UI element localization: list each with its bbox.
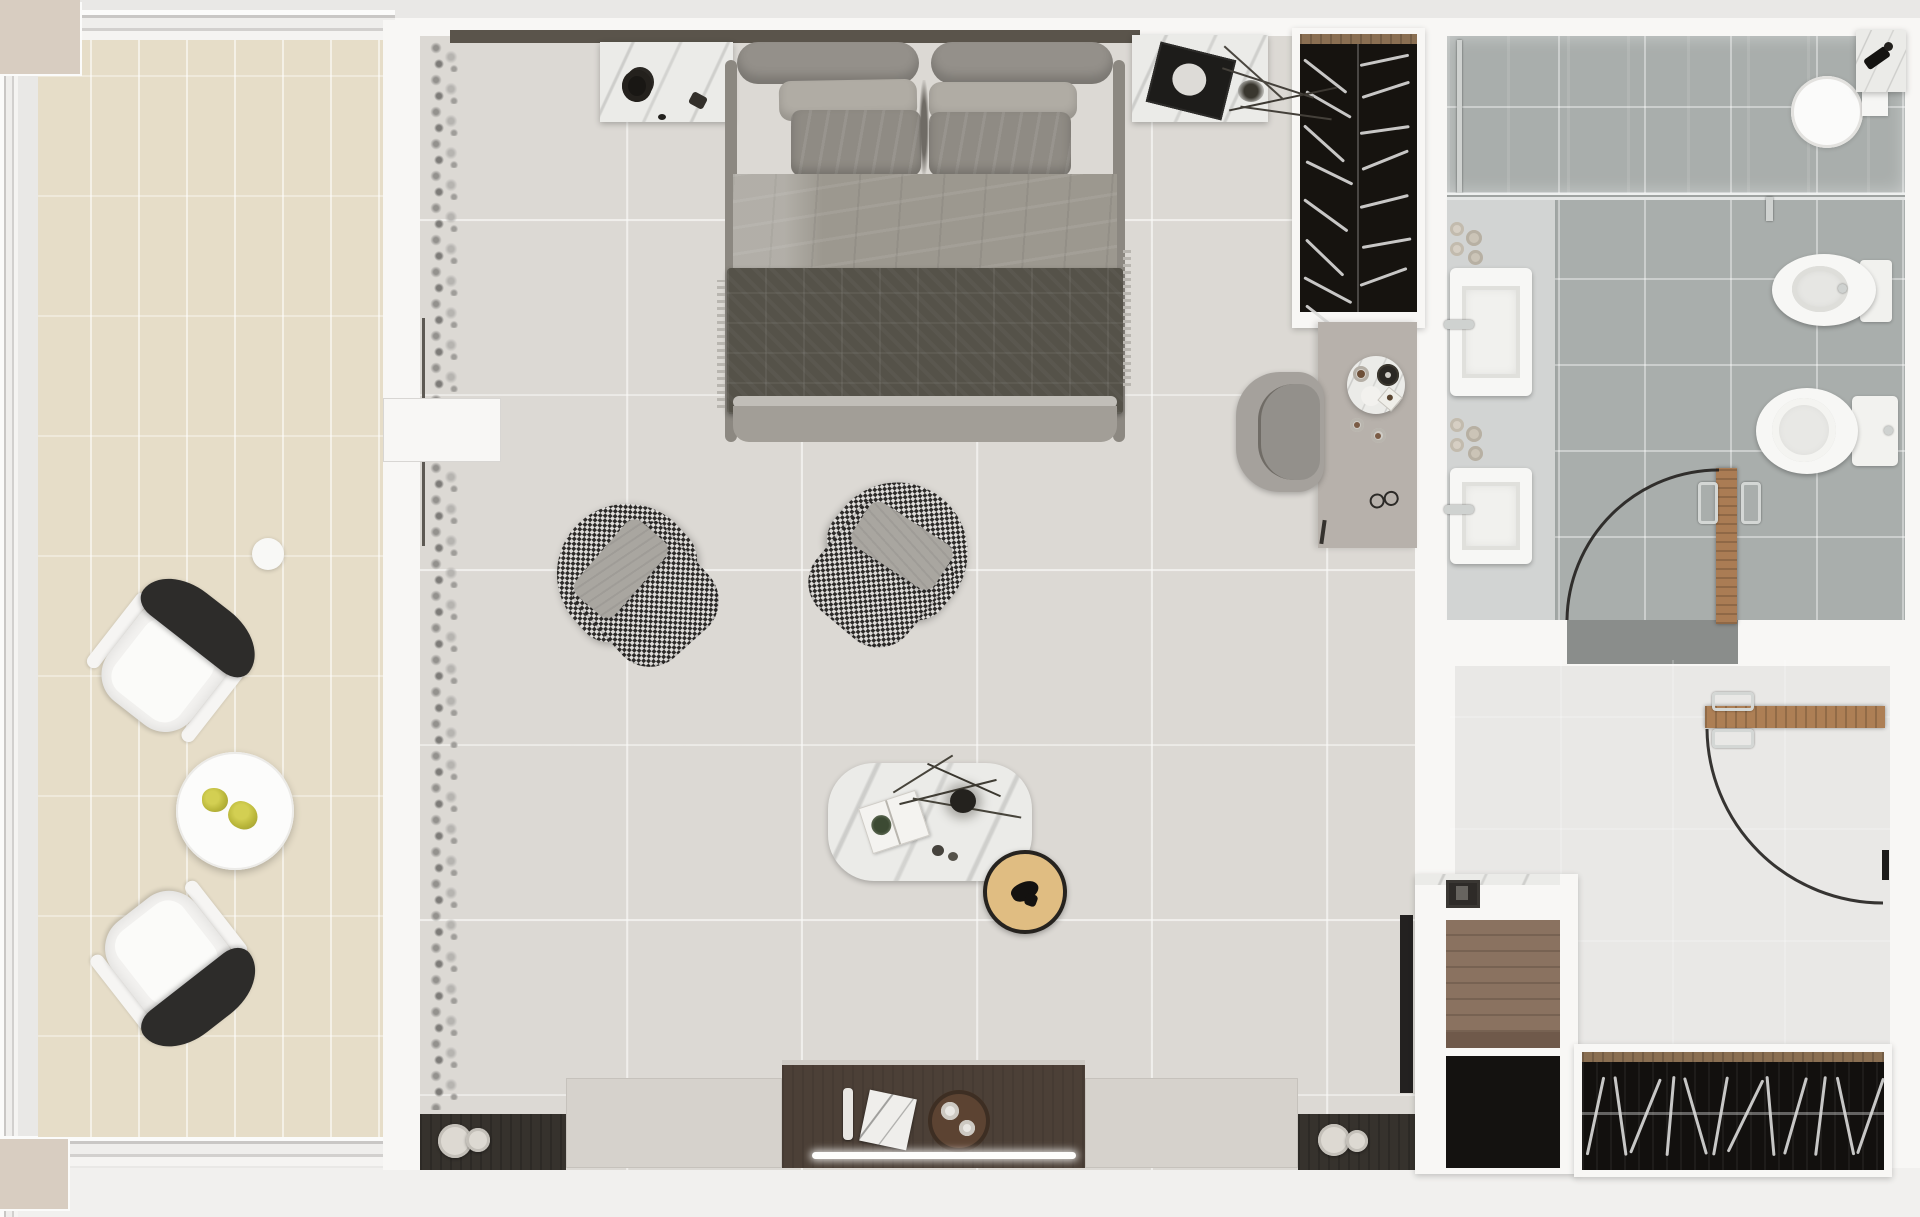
clothes-hanger bbox=[1303, 198, 1348, 232]
coaster bbox=[1371, 428, 1386, 443]
clothes-hanger bbox=[1712, 1076, 1729, 1155]
tv-shelf-right bbox=[1298, 1114, 1415, 1170]
door-handle bbox=[1712, 692, 1754, 711]
entry-closet-interior bbox=[1582, 1062, 1884, 1170]
toilet-tank bbox=[1852, 396, 1898, 466]
bed-base bbox=[733, 406, 1117, 442]
pillow-crease bbox=[919, 80, 929, 176]
bathroom-bottom-wall-right bbox=[1738, 620, 1920, 664]
clothes-hanger bbox=[1836, 1077, 1856, 1156]
throw-fringe-right bbox=[1123, 246, 1131, 386]
cabinet-black-base bbox=[1446, 1056, 1560, 1168]
double-bed bbox=[723, 40, 1127, 446]
sink-upper bbox=[1450, 268, 1532, 396]
clothes-hanger bbox=[1362, 237, 1412, 249]
throw-fringe-left bbox=[717, 280, 725, 408]
bottle-cap bbox=[1884, 42, 1893, 51]
clothes-hanger bbox=[1360, 194, 1409, 209]
niche-shelf bbox=[1446, 1032, 1560, 1048]
faucet bbox=[1444, 320, 1474, 329]
door-handle bbox=[1712, 729, 1754, 748]
clothes-hanger bbox=[1362, 81, 1410, 99]
toiletry-jar bbox=[1450, 222, 1464, 236]
sheer-curtain-lower bbox=[426, 460, 462, 1110]
bidet-drain bbox=[1838, 284, 1847, 293]
sink-lower bbox=[1450, 468, 1532, 564]
clothes-hanger bbox=[1814, 1076, 1827, 1156]
remote bbox=[843, 1088, 853, 1140]
desk-chair-seat bbox=[1258, 384, 1320, 480]
entry-cabinet bbox=[1415, 874, 1578, 1174]
balcony-door-sill bbox=[383, 398, 501, 462]
desk-chair bbox=[1236, 372, 1324, 492]
toiletry-jar bbox=[1468, 250, 1483, 265]
media-console bbox=[782, 1060, 1085, 1168]
round-stool bbox=[983, 850, 1067, 934]
desk bbox=[1318, 322, 1417, 548]
sheer-curtain-upper bbox=[426, 40, 462, 398]
cabinet-decor-box bbox=[1446, 880, 1480, 908]
clothes-hanger bbox=[1305, 238, 1344, 276]
clothes-hanger bbox=[1666, 1076, 1676, 1156]
nightstand-left bbox=[600, 42, 733, 122]
clothes-hanger bbox=[1303, 276, 1352, 304]
tall-cabinet-edge bbox=[1400, 915, 1413, 1093]
glass-edge-profile bbox=[1457, 40, 1462, 193]
door-handle bbox=[1698, 482, 1718, 524]
entry-closet bbox=[1574, 1044, 1892, 1177]
tv-panel-left bbox=[566, 1078, 782, 1168]
toiletry-jar bbox=[1450, 438, 1464, 452]
sink-basin bbox=[1462, 286, 1520, 378]
led-strip bbox=[812, 1152, 1076, 1159]
floor-plan-scene bbox=[0, 0, 1920, 1217]
clothes-hanger bbox=[1783, 1077, 1808, 1155]
bowl-center bbox=[1385, 372, 1391, 378]
black-mug bbox=[622, 70, 652, 102]
clothes-hanger bbox=[1586, 1077, 1606, 1156]
shower-glass-rail bbox=[1447, 193, 1905, 200]
clothes-hanger bbox=[1360, 54, 1410, 67]
clothes-hanger bbox=[1629, 1078, 1662, 1153]
window-frame-edge bbox=[422, 318, 425, 400]
headboard-cushion-left bbox=[737, 42, 919, 84]
wood-tray bbox=[928, 1090, 990, 1152]
coaster-center bbox=[1375, 433, 1381, 439]
coffee bbox=[1357, 370, 1365, 378]
cabinet-open-niche bbox=[1446, 920, 1560, 1048]
tray-cup bbox=[1353, 366, 1369, 382]
flush-button bbox=[1884, 426, 1893, 435]
door-frame-stop bbox=[1882, 850, 1889, 880]
branch bbox=[1240, 106, 1331, 121]
coaster-center bbox=[1354, 422, 1360, 428]
entry-closet-rail bbox=[1582, 1062, 1884, 1170]
shower-head bbox=[1791, 76, 1863, 148]
shower-corner-shelf bbox=[1856, 30, 1906, 92]
clothes-hanger bbox=[1360, 125, 1410, 135]
clothes-hanger bbox=[1766, 1076, 1776, 1156]
branch-cluster bbox=[1238, 80, 1264, 102]
toilet bbox=[1756, 388, 1858, 474]
window-frame-edge bbox=[422, 458, 425, 546]
potted-plant bbox=[202, 788, 228, 812]
roof-block-bottom-left bbox=[0, 1139, 68, 1209]
clothes-hanger bbox=[1359, 267, 1407, 287]
tray-ball bbox=[1361, 386, 1381, 406]
cup bbox=[941, 1102, 959, 1120]
faucet bbox=[1444, 505, 1474, 514]
bidet bbox=[1772, 254, 1876, 326]
figurine-part bbox=[1023, 892, 1038, 907]
roof-block-top-left bbox=[0, 0, 80, 74]
decor-pebble bbox=[948, 852, 958, 861]
bathroom-door-open bbox=[1716, 468, 1737, 624]
balcony-rail-left bbox=[0, 0, 18, 1217]
book-cover-art bbox=[1169, 60, 1210, 99]
vase-with-branches bbox=[950, 789, 976, 813]
toiletry-jar bbox=[1450, 418, 1464, 432]
cup bbox=[959, 1120, 975, 1136]
toiletry-jar bbox=[1450, 242, 1464, 256]
decor-plate bbox=[1346, 1130, 1368, 1152]
decor-plant-mark bbox=[1456, 886, 1468, 900]
drawer-knob bbox=[658, 114, 666, 120]
toiletry-jar bbox=[1468, 446, 1483, 461]
tv-shelf-left bbox=[420, 1114, 566, 1170]
sink-basin bbox=[1462, 482, 1520, 550]
bathroom-bottom-wall-left bbox=[1437, 620, 1567, 664]
tray-star-bowl bbox=[1377, 364, 1399, 386]
dried-branches bbox=[1210, 42, 1360, 170]
nightstand-accessory bbox=[688, 91, 708, 110]
coaster bbox=[1350, 418, 1364, 432]
pillow-front-left bbox=[791, 110, 921, 176]
pillow-front-right bbox=[929, 112, 1071, 176]
clothes-hanger bbox=[1856, 1078, 1885, 1155]
bathroom-doorway-floor bbox=[1567, 620, 1738, 664]
toiletry-jar bbox=[1466, 426, 1482, 442]
cabinet-marble-top bbox=[1415, 874, 1560, 885]
balcony-round-table bbox=[176, 752, 294, 870]
decor-pebble bbox=[932, 845, 944, 856]
dish-center bbox=[1386, 393, 1394, 401]
potted-plant bbox=[224, 797, 263, 834]
clothes-hanger bbox=[1361, 149, 1408, 171]
clothes-hanger bbox=[1683, 1077, 1708, 1155]
door-handle bbox=[1741, 482, 1761, 524]
clothes-hanger bbox=[1727, 1079, 1765, 1152]
closet-wood-top bbox=[1582, 1052, 1884, 1062]
clothes-hanger bbox=[1613, 1076, 1627, 1156]
tv-panel-right bbox=[1085, 1078, 1298, 1168]
throw-blanket bbox=[727, 268, 1123, 414]
balcony-floor-light bbox=[252, 538, 284, 570]
toiletry-jar bbox=[1466, 230, 1482, 246]
headboard-cushion-right bbox=[931, 42, 1113, 84]
shower-door-handle bbox=[1766, 197, 1773, 221]
toilet-seat bbox=[1772, 398, 1836, 462]
desk-tray bbox=[1347, 356, 1405, 414]
decor-plate bbox=[466, 1128, 490, 1152]
